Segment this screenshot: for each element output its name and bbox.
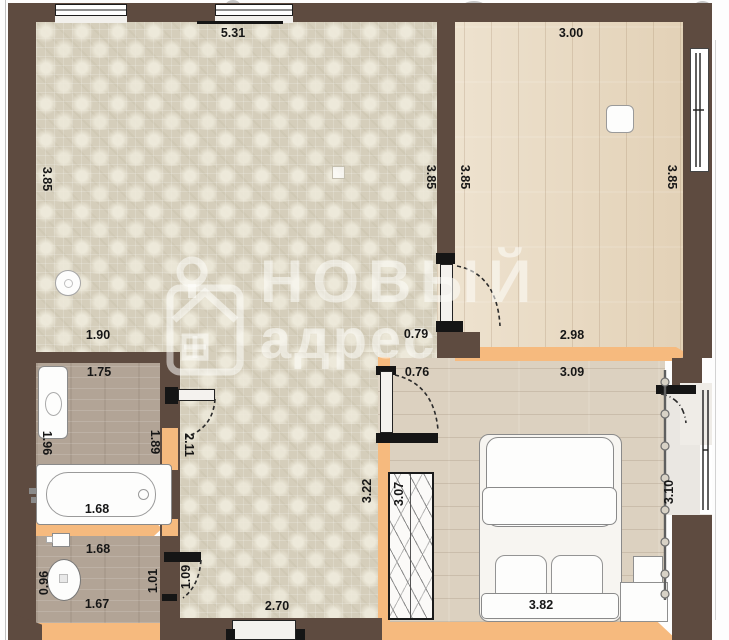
dim-bedroom-left: 3.22 (360, 473, 374, 509)
living-window-1-sill (55, 16, 127, 23)
bedroom-door-leaf (380, 371, 393, 433)
dim-kitchen-door: 0.79 (398, 327, 434, 341)
bathtub-drain (138, 489, 149, 500)
dim-bath-left: 1.96 (40, 425, 54, 461)
dim-bedroom-bottom: 3.82 (523, 598, 559, 612)
dim-bath-right: 1.89 (148, 424, 162, 460)
bathroom-sink-basin (45, 392, 62, 416)
bed-fold (482, 487, 617, 525)
wc-cistern-knob (46, 536, 53, 543)
dim-living-right: 3.85 (424, 159, 438, 195)
bed (479, 434, 622, 622)
dim-bedroom-right: 3.10 (662, 474, 676, 510)
sheet-edge-right (715, 40, 716, 620)
bedroom-door-sill (376, 433, 438, 443)
dim-wc-left: 0.96 (37, 565, 51, 601)
kitchen-floor (437, 22, 683, 358)
kitchen-window (690, 48, 709, 172)
dim-bedroom-top: 3.09 (554, 365, 590, 379)
dim-kitchen-top: 3.00 (553, 26, 589, 40)
nightstand-box (633, 556, 663, 583)
wall-bedroom-topright (672, 358, 702, 385)
living-lamp-center (64, 279, 73, 288)
dim-kitchen-left: 3.85 (458, 159, 472, 195)
wall-left (8, 3, 36, 625)
dim-wc-right: 1.01 (146, 563, 160, 599)
dim-bedroom-door: 0.76 (399, 365, 435, 379)
dim-kitchen-right: 3.85 (665, 159, 679, 195)
dim-bedroom-outer-top: 2.98 (554, 328, 590, 342)
entrance-door-jamb-right (296, 629, 305, 640)
living-room-floor (36, 22, 437, 363)
living-window-1 (55, 4, 127, 16)
dim-bath-top: 1.75 (81, 365, 117, 379)
wall-kitchen-corner (437, 332, 480, 358)
dim-bathtub: 1.68 (79, 502, 115, 516)
partition-kitchen-bedroom (455, 347, 688, 361)
kitchen-door-jamb-bottom (436, 321, 463, 332)
sheet-edge-left (5, 0, 6, 640)
entrance-door-jamb-left (226, 629, 235, 640)
partition-bottom-right (357, 622, 677, 640)
dim-wc-top: 1.68 (80, 542, 116, 556)
kitchen-door-jamb-top (436, 253, 455, 264)
wardrobe-rail (410, 474, 411, 618)
wc-door-jamb (162, 594, 177, 601)
dim-living-top: 5.31 (215, 26, 251, 40)
nightstand (620, 582, 668, 622)
dim-hall-bottom: 2.70 (259, 599, 295, 613)
entrance-door-leaf (232, 620, 296, 640)
wall-corner-bottom-right (677, 595, 712, 640)
kitchen-stool (606, 105, 634, 133)
dim-living-left: 3.85 (40, 161, 54, 197)
bathroom-door-jamb (165, 387, 178, 404)
toilet-flush (59, 574, 68, 583)
dim-wardrobe: 3.07 (392, 476, 406, 512)
dim-line-5-31 (197, 21, 283, 24)
floor-plan: НОВЫЙ адрес 5.31 3.85 3.85 1.90 3.00 3.8… (0, 0, 729, 640)
balcony-door-leaf (656, 385, 696, 394)
wall-living-kitchen (437, 22, 455, 262)
wall-bath-top (33, 352, 180, 363)
dim-wc-bottom: 1.67 (79, 597, 115, 611)
kitchen-door-leaf (440, 264, 453, 323)
living-window-2 (215, 4, 293, 16)
dim-wc-door: 1.09 (179, 559, 193, 595)
wc-cistern (52, 533, 70, 547)
dim-hall-side: 2.11 (182, 427, 196, 463)
dim-living-opening: 1.90 (80, 328, 116, 342)
ceiling-sensor (332, 166, 345, 179)
bathroom-door-leaf (178, 389, 215, 401)
